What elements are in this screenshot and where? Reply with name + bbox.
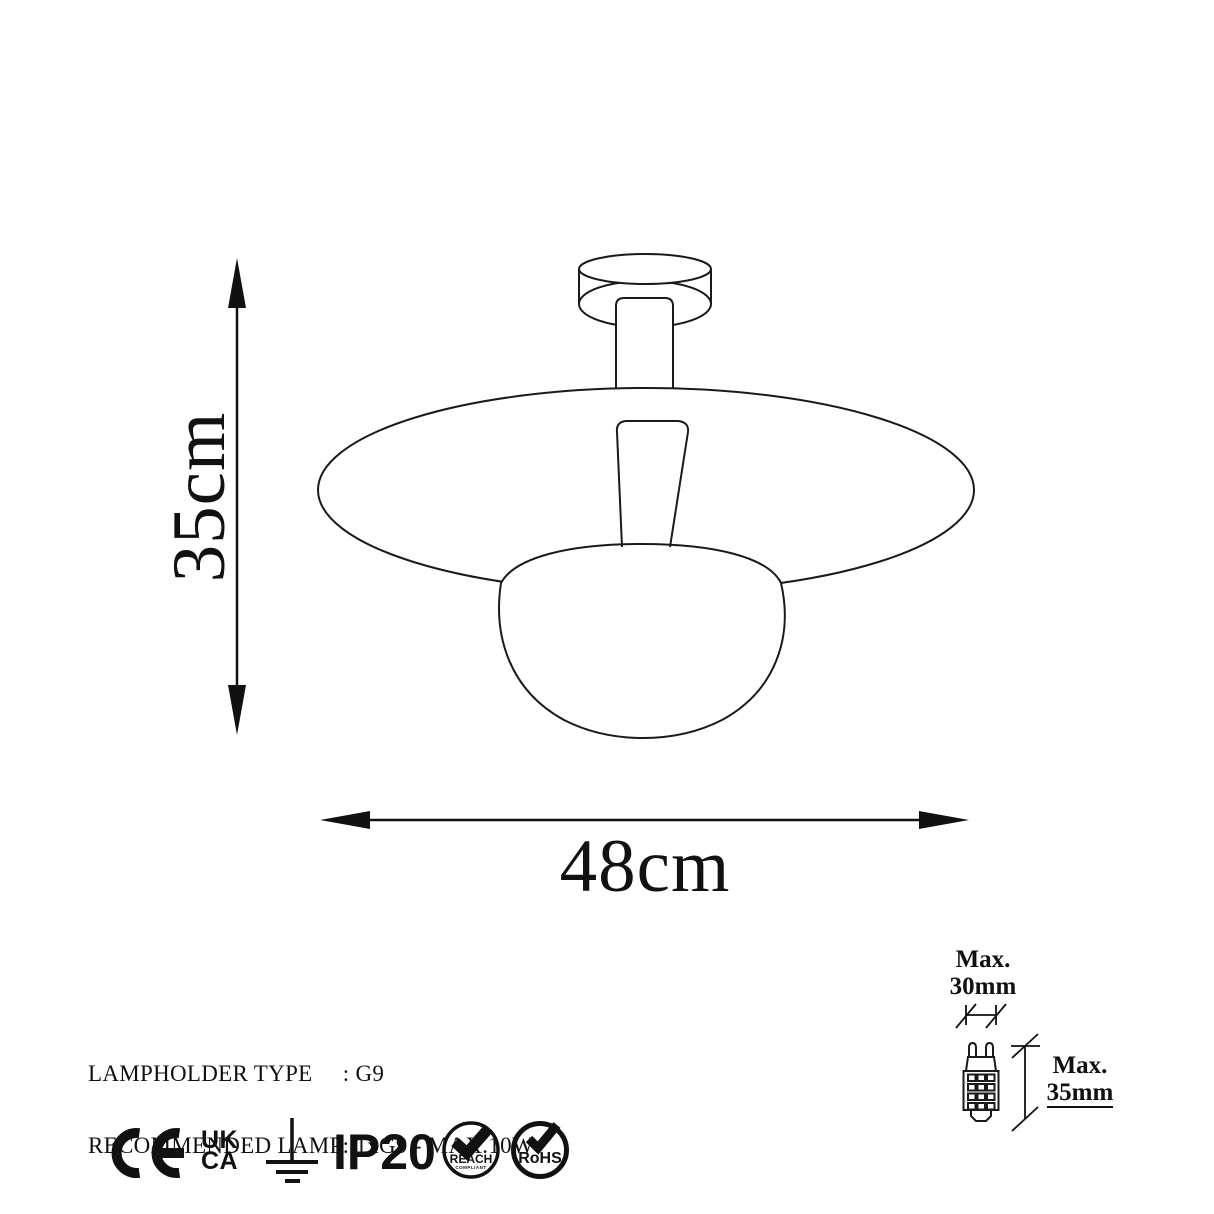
max-height-value: 35mm — [1018, 1079, 1142, 1106]
lampholder-type-line: LAMPHOLDER TYPE : G9 — [88, 1062, 534, 1086]
ukca-bottom: CA — [201, 1151, 238, 1172]
dome-diffuser — [499, 544, 785, 738]
rohs-label: RoHS — [500, 1150, 580, 1168]
max-width-value: 30mm — [921, 973, 1045, 1000]
g9-bulb-icon — [964, 1043, 999, 1121]
ceiling-lamp-outline — [318, 254, 974, 738]
reach-label: REACH — [431, 1152, 511, 1166]
width-dimension-label: 48cm — [485, 827, 805, 907]
reach-compliant-sublabel: COMPLIANT — [441, 1165, 501, 1170]
ip-rating-label: IP20 — [333, 1126, 436, 1178]
stem-tube — [616, 298, 673, 390]
max-height-word: Max. — [1018, 1052, 1142, 1079]
bulb-width-dim-ticks — [956, 1004, 1006, 1028]
bulb-max-height-label: Max. 35mm — [1018, 1052, 1142, 1106]
bulb-max-width-label: Max. 30mm — [921, 946, 1045, 1000]
height-dimension-label: 35cm — [160, 337, 240, 657]
max-width-word: Max. — [921, 946, 1045, 973]
ukca-mark-icon: UK CA — [201, 1130, 238, 1172]
product-dimension-diagram: 35cm 48cm LAMPHOLDER TYPE : G9 RECOMMEND… — [0, 0, 1214, 1214]
spec-text-block: LAMPHOLDER TYPE : G9 RECOMMENDED LAMP: 1… — [88, 1014, 534, 1206]
